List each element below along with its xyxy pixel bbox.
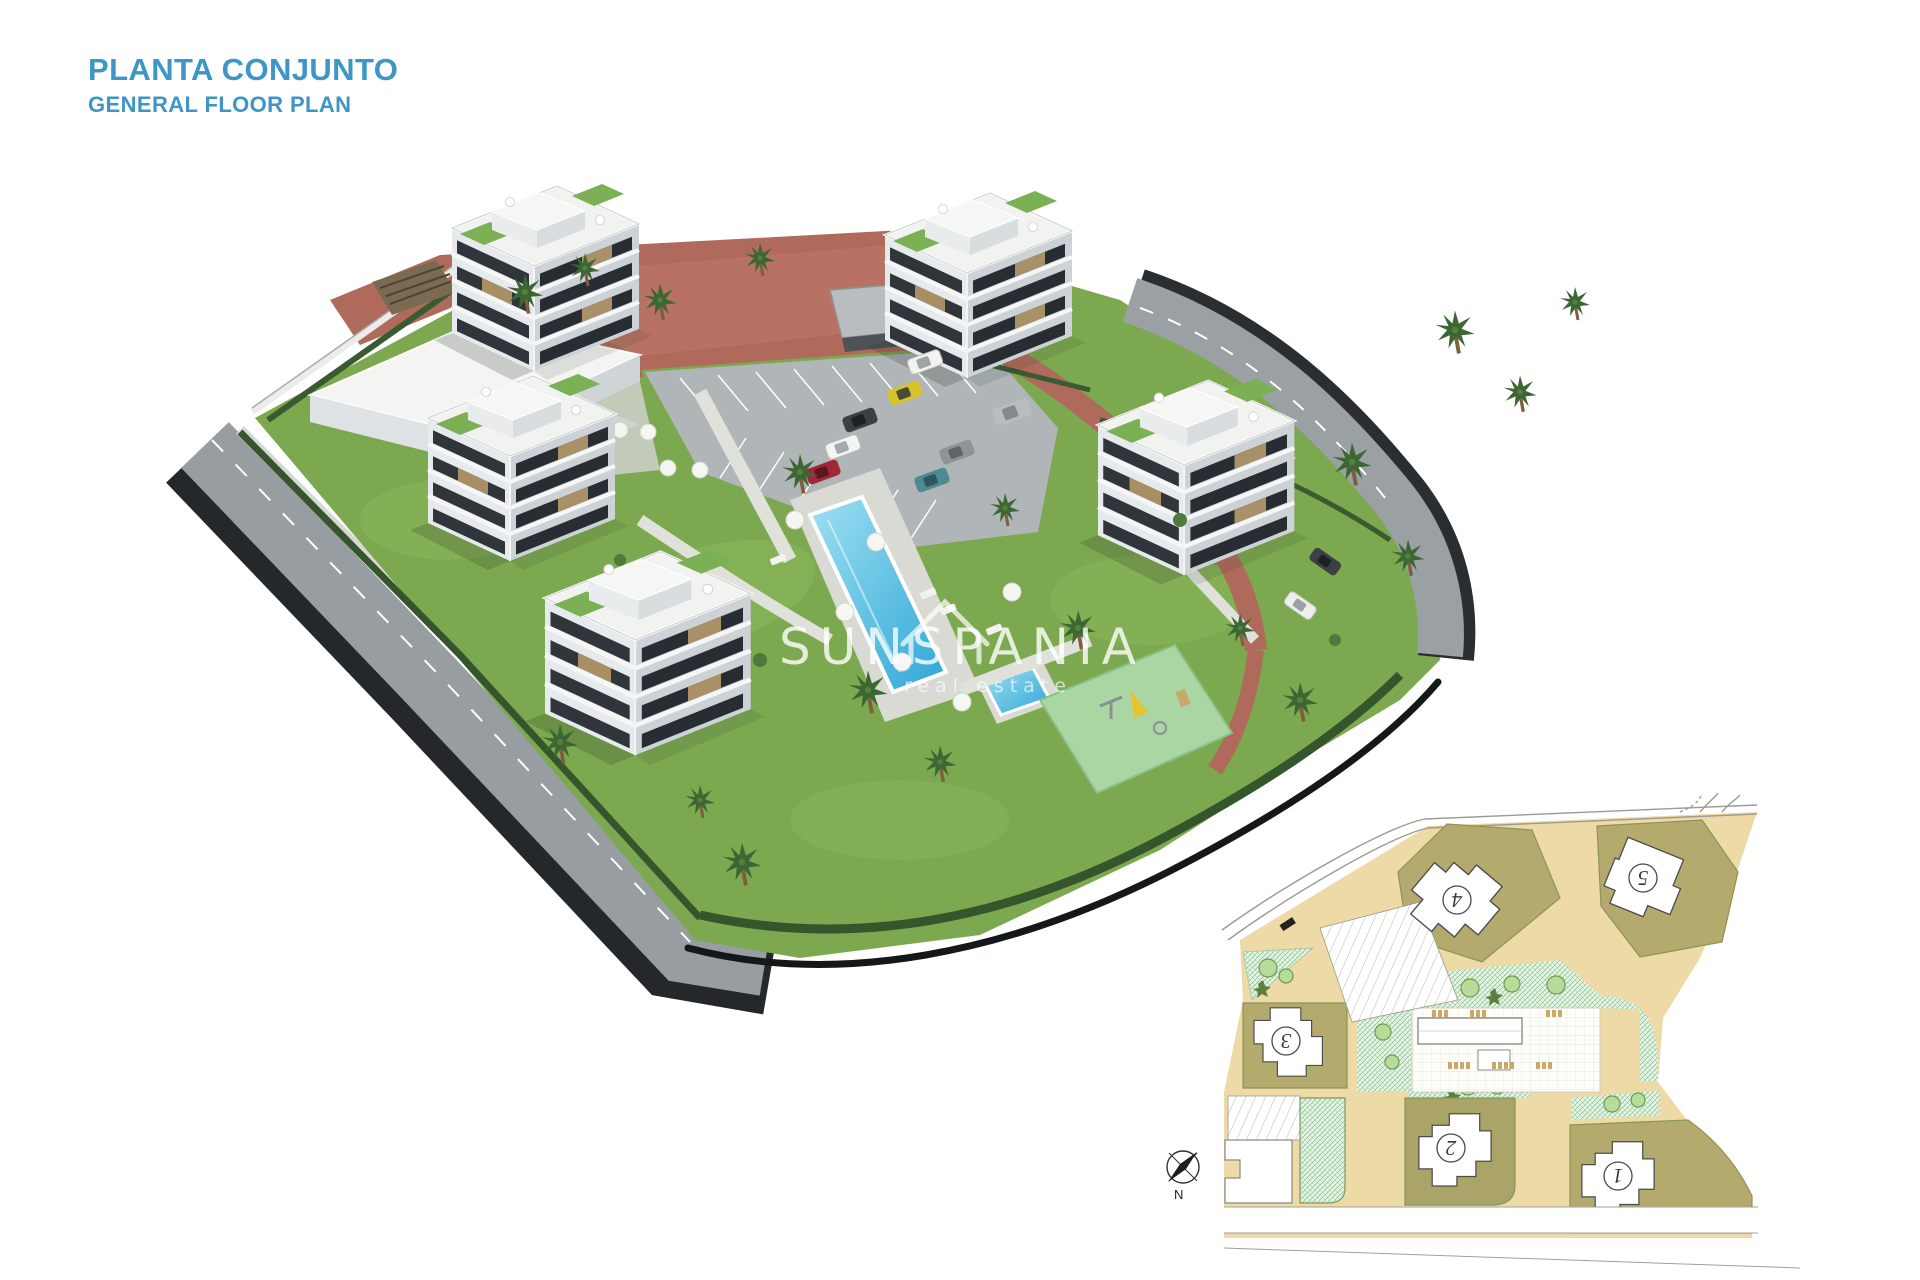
watermark-brand: SUNSPANIA [779,618,1145,676]
building-1-label: 1 [1613,1164,1624,1188]
inset-site-plan: 4 5 3 2 1 [1167,793,1800,1268]
compass-north-label: N [1174,1187,1183,1202]
building-3-label: 3 [1281,1029,1293,1053]
building-5-label: 5 [1638,866,1649,890]
page: PLANTA CONJUNTO GENERAL FLOOR PLAN [0,0,1920,1280]
inset-green-court [1300,1098,1345,1203]
compass-icon: N [1167,1151,1199,1202]
inset-parking [1228,1096,1300,1140]
building-4-label: 4 [1451,888,1462,912]
building-2-label: 2 [1445,1136,1456,1160]
site-render: SUNSPANIA real estate [0,0,1920,1280]
inset-amenity-court [1412,1008,1600,1092]
watermark-tagline: real estate [904,675,1072,697]
